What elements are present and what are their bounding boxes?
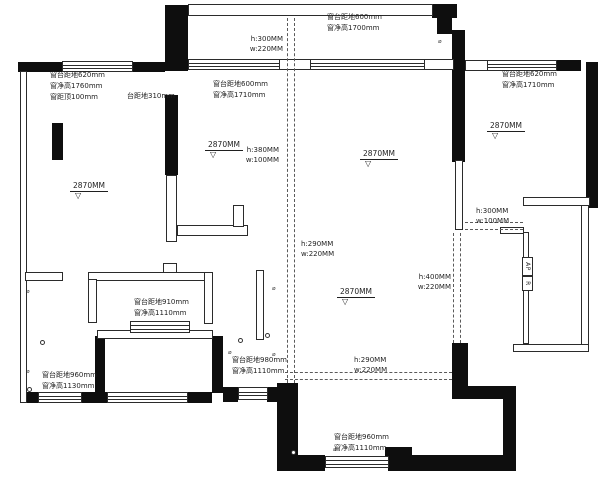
solid-wall <box>52 123 63 160</box>
beam-label-line: h:300MM <box>476 207 509 217</box>
beam-label: h:300MMw:100MM <box>476 207 509 226</box>
beam-dash-line <box>465 229 523 230</box>
level-triangle-icon: ▽ <box>75 192 108 199</box>
marker-tick-icon: ⌀ <box>26 289 30 295</box>
window-label-line: 窗台距地620mm <box>50 70 105 81</box>
beam-label-line: w:100MM <box>476 217 509 227</box>
window-pane-line <box>239 392 267 393</box>
window-pane-line <box>189 63 279 64</box>
beam-label-line: w:100MM <box>246 156 279 166</box>
thin-wall <box>513 344 589 352</box>
window-label-line: 窗台距地600mm <box>327 12 382 23</box>
window-label-line: 窗台距地980mm <box>232 355 287 366</box>
window-pane-line <box>39 396 81 397</box>
solid-wall <box>388 455 503 471</box>
beam-dash-line <box>285 379 452 380</box>
marker-tick-icon: ⌀ <box>228 350 232 356</box>
marker-circle-icon <box>291 450 296 455</box>
beam-label-line: w:220MM <box>301 250 334 260</box>
window-label-line: 窗净高1110mm <box>134 308 189 319</box>
thin-wall <box>455 160 463 230</box>
solid-wall <box>452 343 468 390</box>
marker-tick-icon: ⌀ <box>272 286 276 292</box>
window-label-line: 窗净高1760mm <box>50 81 105 92</box>
window-label-line: 窗净高1710mm <box>502 80 557 91</box>
window-symbol <box>130 321 190 333</box>
solid-wall <box>298 455 325 471</box>
marker-tick-icon: ⌀ <box>26 369 30 375</box>
window-pane-line <box>326 464 388 465</box>
thin-wall <box>20 71 27 403</box>
solid-wall <box>82 392 107 403</box>
window-label: 台距地310mm <box>127 91 175 102</box>
window-pane-line <box>326 460 388 461</box>
beam-label: h:400MMw:220MM <box>418 273 451 292</box>
beam-dash-line <box>453 233 454 343</box>
window-label: 窗台距地620mm窗净高1710mm <box>502 69 557 91</box>
solid-wall <box>212 336 223 393</box>
marker-circle-icon <box>40 340 45 345</box>
thin-wall <box>166 175 177 242</box>
thin-wall <box>581 205 589 345</box>
window-label-line: 台距地310mm <box>127 91 175 102</box>
solid-wall <box>223 387 238 402</box>
window-pane-line <box>63 65 132 66</box>
thin-wall <box>278 59 312 70</box>
thin-wall <box>25 272 63 281</box>
thin-wall <box>256 270 264 340</box>
level-triangle-icon: ▽ <box>342 298 375 305</box>
beam-label-line: h:290MM <box>354 356 387 366</box>
level-symbol: 2870MM▽ <box>205 141 243 158</box>
window-label-line: 窗净高1700mm <box>327 23 382 34</box>
ac-platform-label: R <box>522 276 533 291</box>
window-label: 窗台距地600mm窗净高1710mm <box>213 79 268 101</box>
beam-label-line: h:300MM <box>250 35 283 45</box>
thin-wall <box>88 279 97 323</box>
window-label: 窗台距地960mm窗净高1110mm <box>334 432 389 454</box>
marker-circle-icon <box>238 338 243 343</box>
thin-wall <box>423 59 454 70</box>
window-label-line: 窗净高1130mm <box>42 381 97 392</box>
beam-dash-line <box>460 233 461 343</box>
thin-wall <box>523 197 590 206</box>
level-symbol: 2870MM▽ <box>70 182 108 199</box>
level-triangle-icon: ▽ <box>365 160 398 167</box>
level-symbol: 2870MM▽ <box>360 150 398 167</box>
thin-wall <box>163 263 177 273</box>
marker-circle-icon <box>265 333 270 338</box>
window-label-line: 窗台距地960mm <box>42 370 97 381</box>
solid-wall <box>277 383 298 471</box>
beam-dash-line <box>287 18 288 383</box>
solid-wall <box>188 392 212 403</box>
window-label-line: 窗净高1110mm <box>232 366 287 377</box>
window-symbol <box>310 59 425 70</box>
solid-wall <box>452 386 503 399</box>
marker-tick-icon: ⌀ <box>438 39 442 45</box>
window-pane-line <box>311 63 424 64</box>
solid-wall <box>437 8 452 34</box>
window-pane-line <box>108 399 187 400</box>
window-label: 窗台距地960mm窗净高1130mm <box>42 370 97 392</box>
window-label-line: 窗距顶100mm <box>50 92 105 103</box>
level-triangle-icon: ▽ <box>210 151 243 158</box>
solid-wall <box>557 60 581 71</box>
marker-circle-icon <box>27 387 32 392</box>
ac-platform-label-text: R <box>524 281 531 286</box>
window-pane-line <box>108 396 187 397</box>
marker-tick-icon: ⌀ <box>333 447 337 453</box>
solid-wall <box>133 62 165 72</box>
beam-label-line: h:400MM <box>418 273 451 283</box>
level-symbol: 2870MM▽ <box>337 288 375 305</box>
beam-label: h:300MMw:220MM <box>250 35 283 54</box>
window-symbol <box>38 392 82 403</box>
window-pane-line <box>189 66 279 67</box>
window-pane-line <box>63 68 132 69</box>
window-label-line: 窗台距地620mm <box>502 69 557 80</box>
window-pane-line <box>39 399 81 400</box>
marker-tick-icon: ⌀ <box>272 352 276 358</box>
floor-plan-canvas: 窗台距地620mm窗净高1760mm窗距顶100mm台距地310mm窗台距地60… <box>0 0 600 480</box>
window-pane-line <box>239 395 267 396</box>
solid-wall <box>452 30 465 162</box>
window-pane-line <box>131 329 189 330</box>
window-label-line: 窗台距地600mm <box>213 79 268 90</box>
window-label: 窗台距地600mm窗净高1700mm <box>327 12 382 34</box>
beam-dash-line <box>294 18 295 383</box>
window-pane-line <box>131 325 189 326</box>
window-symbol <box>188 59 280 70</box>
solid-wall <box>503 386 516 471</box>
window-symbol <box>107 392 188 403</box>
ac-platform-label: AP <box>522 257 533 276</box>
ac-platform-label-text: AP <box>524 262 531 271</box>
window-pane-line <box>311 66 424 67</box>
thin-wall <box>88 272 213 281</box>
window-label-line: 窗台距地960mm <box>334 432 389 443</box>
beam-label-line: w:220MM <box>250 45 283 55</box>
level-triangle-icon: ▽ <box>492 132 525 139</box>
window-pane-line <box>488 67 556 68</box>
window-pane-line <box>488 64 556 65</box>
thin-wall <box>233 205 244 227</box>
thin-wall <box>188 4 433 16</box>
solid-wall <box>165 5 188 71</box>
beam-label-line: h:380MM <box>246 146 279 156</box>
window-label-line: 窗净高1710mm <box>213 90 268 101</box>
beam-label-line: w:220MM <box>354 366 387 376</box>
beam-label-line: w:220MM <box>418 283 451 293</box>
thin-wall <box>465 60 488 71</box>
beam-label: h:290MMw:220MM <box>354 356 387 375</box>
beam-label-line: h:290MM <box>301 240 334 250</box>
window-label-line: 窗台距地910mm <box>134 297 189 308</box>
window-label: 窗台距地620mm窗净高1760mm窗距顶100mm <box>50 70 105 103</box>
solid-wall <box>27 392 38 403</box>
window-label: 窗台距地910mm窗净高1110mm <box>134 297 189 319</box>
window-symbol <box>325 456 389 468</box>
beam-label: h:290MMw:220MM <box>301 240 334 259</box>
solid-wall <box>165 95 178 175</box>
thin-wall <box>204 272 213 324</box>
beam-label: h:380MMw:100MM <box>246 146 279 165</box>
level-symbol: 2870MM▽ <box>487 122 525 139</box>
solid-wall <box>586 62 598 208</box>
window-label: 窗台距地980mm窗净高1110mm <box>232 355 287 377</box>
window-symbol <box>238 387 268 400</box>
window-label-line: 窗净高1110mm <box>334 443 389 454</box>
